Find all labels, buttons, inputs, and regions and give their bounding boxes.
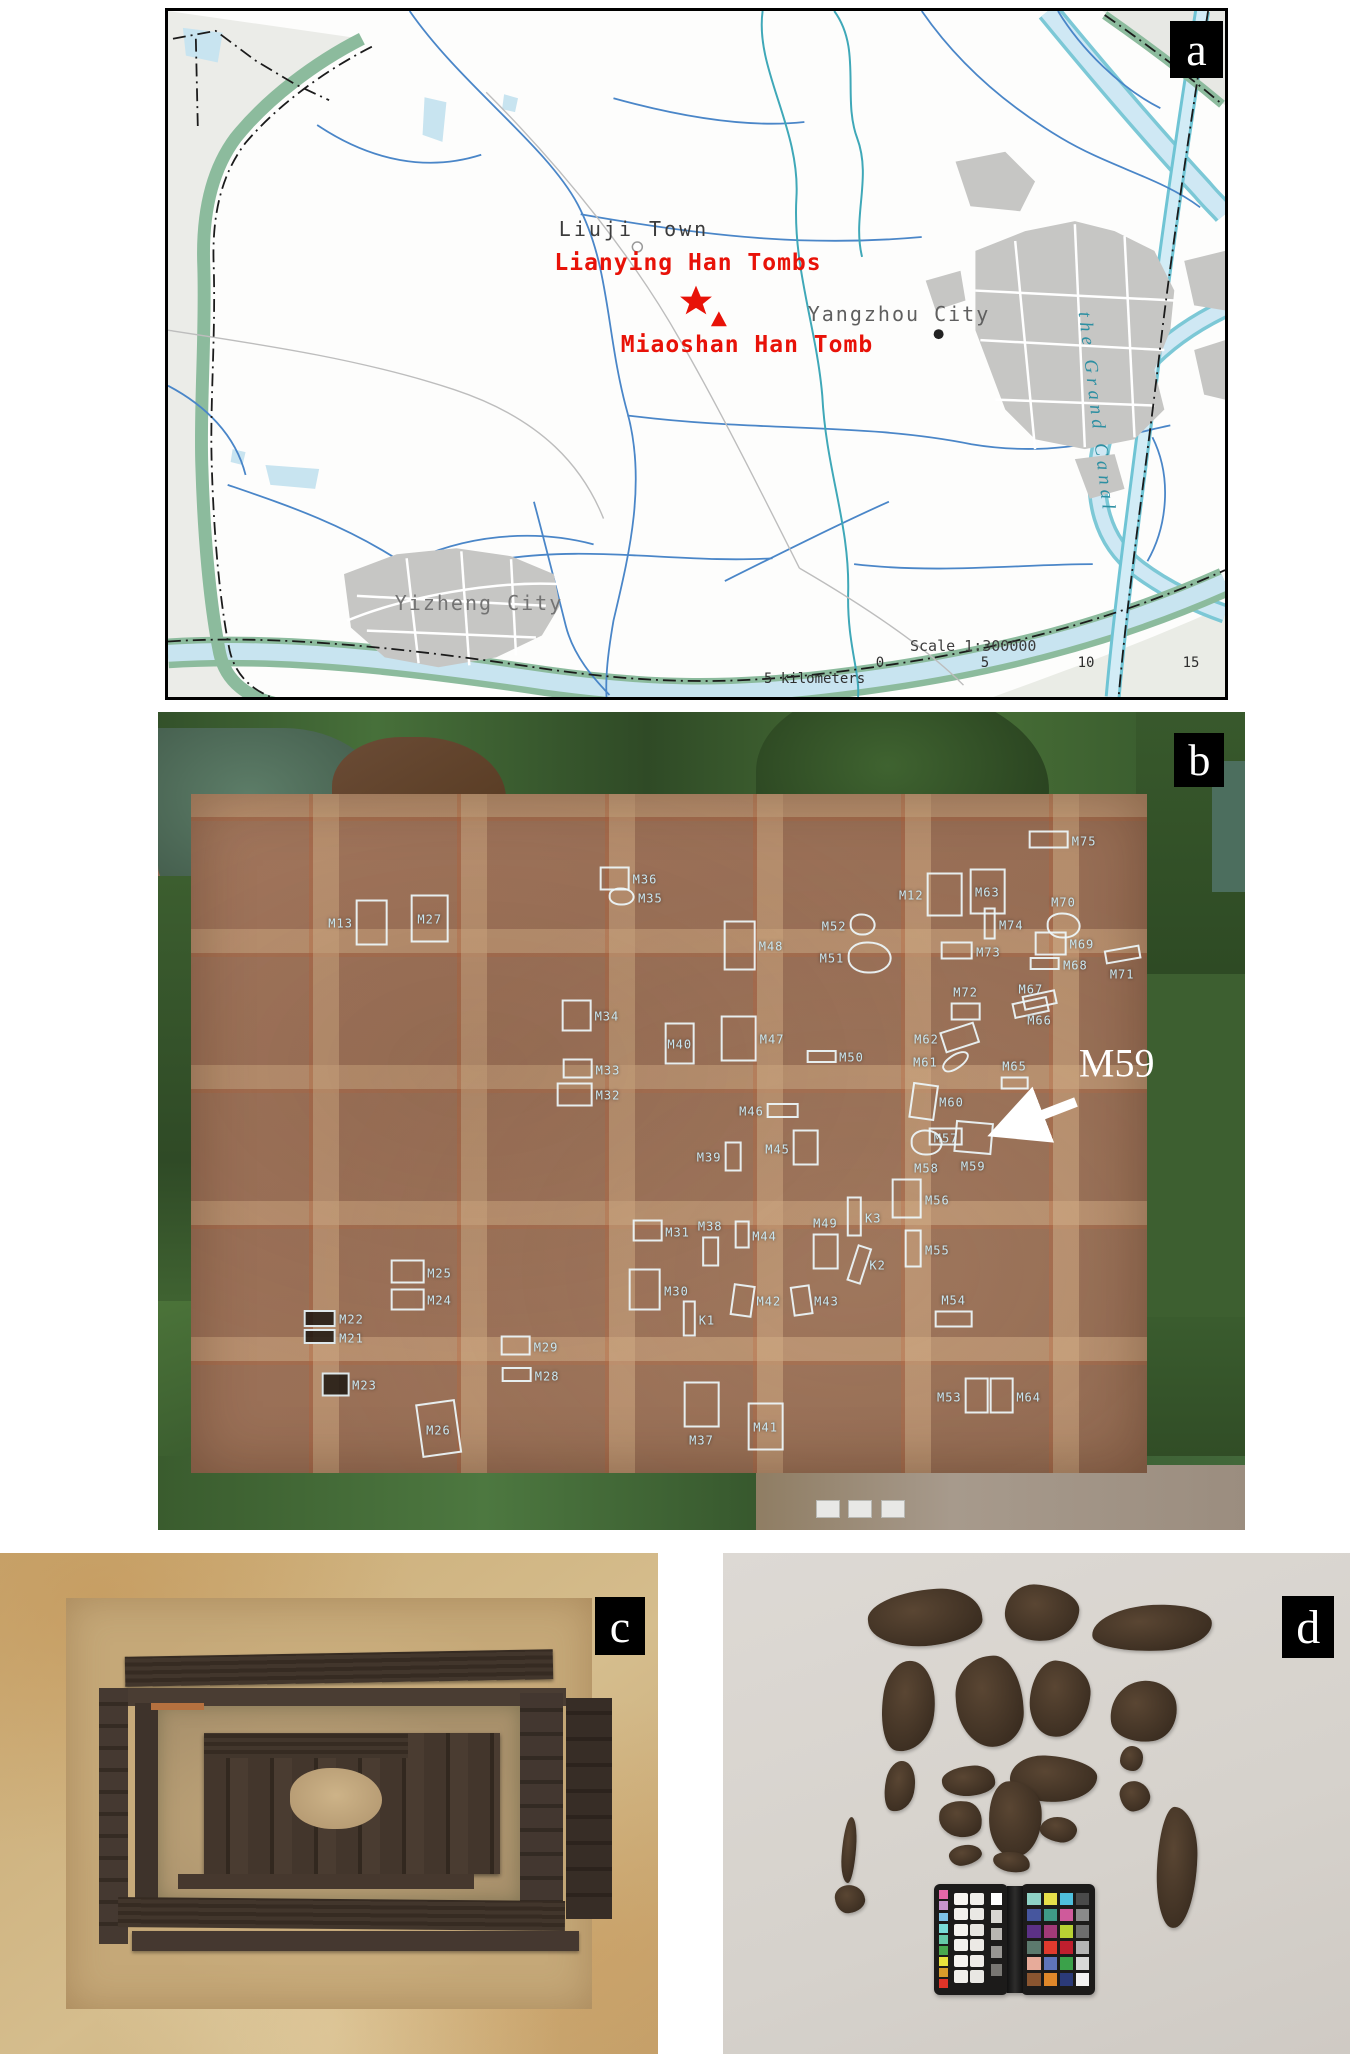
map-scale-unit: 5 kilometers: [764, 671, 865, 687]
card-color-patch: [1076, 1909, 1089, 1922]
card-neutral-patch: [970, 1908, 984, 1920]
figure-page: Liuji Town Lianying Han Tombs Miaoshan H…: [0, 0, 1350, 2054]
card-color-patch: [1044, 1973, 1057, 1986]
card-neutral-patch: [954, 1908, 968, 1920]
card-color-patch: [1060, 1973, 1073, 1986]
card-gray-patch: [991, 1893, 1002, 1905]
inner-light-patch: [290, 1768, 382, 1828]
card-neutral-patch: [954, 1939, 968, 1951]
scale-tick-0: 0: [876, 655, 884, 671]
card-neutral-patch: [970, 1955, 984, 1967]
panel-d-fragments-photo: d: [723, 1553, 1350, 2054]
fragment-3: [1091, 1602, 1214, 1654]
cross-rail-bottom: [178, 1874, 474, 1889]
scale-tick-5: 5: [981, 655, 989, 671]
fragment-1: [865, 1584, 984, 1651]
fragment-15: [1038, 1814, 1078, 1845]
card-neutral-patch: [954, 1955, 968, 1967]
fragment-18: [1155, 1806, 1199, 1928]
card-strip-patch: [939, 1890, 948, 1899]
card-color-patch: [1027, 1925, 1040, 1938]
fragment-11: [1120, 1746, 1143, 1771]
inner-beam: [204, 1733, 408, 1758]
color-checker-card: [934, 1884, 1095, 1995]
scale-tick-10: 10: [1078, 655, 1095, 671]
fragment-5: [953, 1653, 1026, 1748]
card-strip-patch: [939, 1924, 948, 1933]
card-color-patch: [1060, 1957, 1073, 1970]
card-color-patch: [1027, 1973, 1040, 1986]
fragment-6: [1026, 1658, 1093, 1739]
card-gray-patch: [991, 1910, 1002, 1922]
panel-b-letter: b: [1174, 733, 1224, 787]
color-card-left-half: [934, 1884, 1008, 1995]
map-label-liuji-town: Liuji Town: [559, 217, 709, 241]
fragment-7: [1106, 1677, 1180, 1745]
panel-a-letter: a: [1170, 21, 1223, 78]
fragment-13: [937, 1799, 984, 1839]
card-neutral-patch: [970, 1893, 984, 1905]
card-neutral-patch: [970, 1970, 984, 1982]
map-label-yizheng-city: Yizheng City: [395, 591, 564, 615]
card-strip-patch: [939, 1913, 948, 1922]
fragment-16: [947, 1841, 984, 1868]
card-neutral-patch: [954, 1893, 968, 1905]
card-color-patch: [1044, 1893, 1057, 1906]
fragment-12: [1118, 1779, 1153, 1814]
orange-stick: [151, 1703, 204, 1710]
card-gray-patch: [991, 1964, 1002, 1976]
card-color-patch: [1027, 1941, 1040, 1954]
card-gray-patch: [991, 1946, 1002, 1958]
fragment-8: [880, 1759, 920, 1815]
map-label-lianying-han-tombs: Lianying Han Tombs: [554, 250, 821, 276]
card-color-patch: [1027, 1893, 1040, 1906]
fragment-4: [876, 1657, 941, 1754]
scale-tick-15: 15: [1183, 655, 1200, 671]
card-color-patch: [1027, 1957, 1040, 1970]
card-color-patch: [1044, 1925, 1057, 1938]
panel-c-letter: c: [595, 1597, 645, 1655]
wood-plank-right-a: [520, 1693, 563, 1923]
card-color-patch: [1076, 1925, 1089, 1938]
fragment-9: [941, 1764, 997, 1799]
card-color-patch: [1076, 1973, 1089, 1986]
card-strip-patch: [939, 1946, 948, 1955]
fragment-2: [1003, 1582, 1081, 1643]
panel-c-tomb-photo: c: [0, 1553, 658, 2054]
panel-b-aerial-photo: M13M27M36M35M75M12M63M70M74M73M69M68M71M…: [158, 712, 1245, 1530]
map-label-yangzhou-city: Yangzhou City: [808, 302, 991, 326]
card-neutral-patch: [970, 1939, 984, 1951]
yangzhou-city-marker: [934, 329, 944, 339]
wood-plank-right-b: [566, 1698, 612, 1918]
fragment-19: [839, 1817, 857, 1883]
card-color-patch: [1044, 1957, 1057, 1970]
card-strip-patch: [939, 1968, 948, 1977]
card-color-patch: [1060, 1893, 1073, 1906]
card-neutral-patch: [970, 1924, 984, 1936]
card-neutral-patch: [954, 1924, 968, 1936]
map-scalebar-checker: [775, 698, 882, 700]
map-scalebar: [880, 698, 1193, 700]
card-color-patch: [1076, 1957, 1089, 1970]
map-scale-ratio: Scale 1:300000: [910, 637, 1036, 655]
card-strip-patch: [939, 1901, 948, 1910]
panel-a-map: Liuji Town Lianying Han Tombs Miaoshan H…: [165, 8, 1228, 700]
map-label-miaoshan-han-tomb: Miaoshan Han Tomb: [621, 332, 873, 358]
card-strip-patch: [939, 1979, 948, 1988]
card-strip-patch: [939, 1957, 948, 1966]
card-color-patch: [1060, 1941, 1073, 1954]
fragment-20: [833, 1883, 866, 1914]
card-color-patch: [1076, 1941, 1089, 1954]
card-color-patch: [1076, 1893, 1089, 1906]
wood-beam-bottom: [118, 1897, 566, 1931]
card-color-patch: [1060, 1925, 1073, 1938]
color-card-right-half: [1021, 1884, 1095, 1995]
card-color-patch: [1060, 1909, 1073, 1922]
panel-d-letter: d: [1282, 1596, 1334, 1658]
card-strip-patch: [939, 1935, 948, 1944]
card-color-patch: [1027, 1909, 1040, 1922]
wood-beam-bottom-outer: [132, 1931, 579, 1951]
wood-plank-left-inner: [135, 1703, 158, 1918]
card-color-patch: [1044, 1941, 1057, 1954]
card-gray-patch: [991, 1928, 1002, 1940]
color-card-hinge: [1007, 1886, 1023, 1993]
card-color-patch: [1044, 1909, 1057, 1922]
m59-arrow: [158, 712, 1245, 1530]
card-neutral-patch: [954, 1970, 968, 1982]
m59-callout: M59: [1079, 1039, 1155, 1086]
